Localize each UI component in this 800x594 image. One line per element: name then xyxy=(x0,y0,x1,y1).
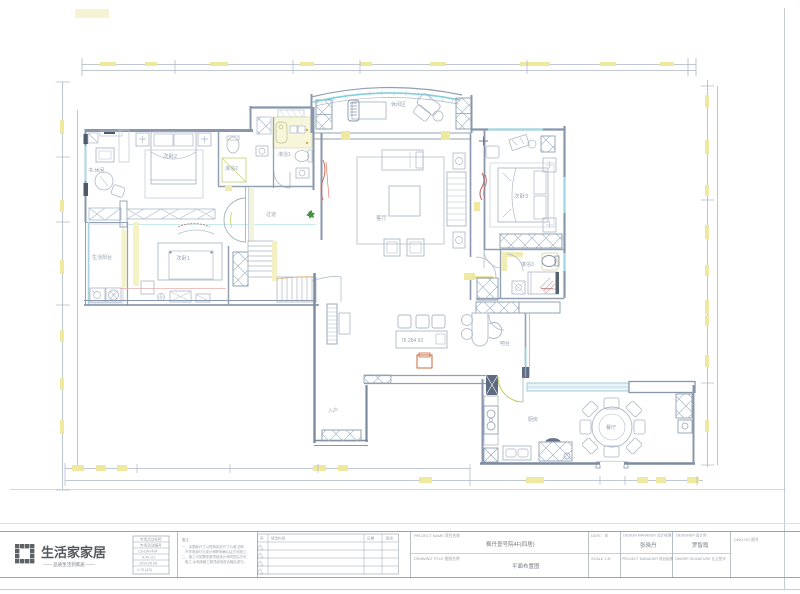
svg-text:二、施工中如需变更须经设计师同意后方可: 二、施工中如需变更须经设计师同意后方可 xyxy=(182,554,247,559)
svg-text:76 284 92: 76 284 92 xyxy=(401,338,423,344)
svg-text:—— 品质生活到家居 ——: —— 品质生活到家居 —— xyxy=(43,561,95,568)
svg-text:淋浴1: 淋浴1 xyxy=(278,151,291,158)
svg-text:生活家家居: 生活家家居 xyxy=(41,545,106,560)
svg-text:厨房: 厨房 xyxy=(528,416,538,423)
svg-text:施工,水电隐蔽工程须经验收合格后进行。: 施工,水电隐蔽工程须经验收合格后进行。 xyxy=(185,559,247,564)
svg-text:淋浴3: 淋浴3 xyxy=(521,261,534,268)
svg-text:备注:: 备注: xyxy=(182,537,190,542)
svg-text:市场活动编号: 市场活动编号 xyxy=(140,543,162,548)
svg-text:入户: 入户 xyxy=(328,407,338,414)
svg-text:吧台: 吧台 xyxy=(500,340,510,347)
svg-text:次卧2: 次卧2 xyxy=(163,152,177,160)
svg-text:A-PL-01: A-PL-01 xyxy=(142,556,155,560)
svg-text:DESIGNER 设计师: DESIGNER 设计师 xyxy=(676,533,707,538)
svg-text:客厅: 客厅 xyxy=(376,214,388,222)
svg-text:书.休闲: 书.休闲 xyxy=(88,167,104,174)
svg-text:DRAWING TITLE 图纸名称: DRAWING TITLE 图纸名称 xyxy=(414,556,460,561)
svg-text:SCALE 1:N: SCALE 1:N xyxy=(591,557,611,561)
svg-text:OWNER SIGNATURE 业主签字: OWNER SIGNATURE 业主签字 xyxy=(675,556,726,561)
svg-text:DATE：年: DATE：年 xyxy=(591,533,609,538)
svg-text:休闲区: 休闲区 xyxy=(391,101,406,108)
svg-text:市场活动名称: 市场活动名称 xyxy=(140,537,162,542)
svg-text:淋浴2: 淋浴2 xyxy=(225,165,238,172)
svg-text:CS-DA-HNF: CS-DA-HNF xyxy=(138,550,159,554)
svg-text:日期: 日期 xyxy=(367,536,375,541)
svg-text:张晓丹: 张晓丹 xyxy=(640,541,657,549)
svg-text:餐厅: 餐厅 xyxy=(606,424,616,431)
svg-text:2019.05.08: 2019.05.08 xyxy=(139,562,157,566)
svg-text:不符请及时与设计师联系确认后方可施工;: 不符请及时与设计师联系确认后方可施工; xyxy=(185,549,247,554)
svg-text:次卧3: 次卧3 xyxy=(514,192,528,200)
svg-text:修改内容: 修改内容 xyxy=(271,536,286,541)
svg-text:1:75 (A3): 1:75 (A3) xyxy=(137,568,152,572)
svg-text:平面布置图: 平面布置图 xyxy=(512,562,540,570)
svg-text:枫丹壹号院4F(四居): 枫丹壹号院4F(四居) xyxy=(486,540,535,548)
svg-text:一、本图纸尺寸以现场实际尺寸为准,如有: 一、本图纸尺寸以现场实际尺寸为准,如有 xyxy=(182,544,245,549)
svg-text:PROJECT MANAGER 项目经理: PROJECT MANAGER 项目经理 xyxy=(622,556,674,561)
svg-text:DWG NO 图号: DWG NO 图号 xyxy=(734,537,759,542)
svg-text:签名: 签名 xyxy=(386,536,394,541)
svg-text:PROJECT NAME 项目名称: PROJECT NAME 项目名称 xyxy=(414,533,460,538)
svg-text:罗智霞: 罗智霞 xyxy=(692,541,709,549)
svg-text:DESIGN MANAGER 设计经理: DESIGN MANAGER 设计经理 xyxy=(623,533,672,538)
svg-text:次卧1: 次卧1 xyxy=(176,254,190,262)
svg-text:序: 序 xyxy=(260,536,264,541)
svg-text:生活阳台: 生活阳台 xyxy=(92,254,112,261)
svg-text:过道: 过道 xyxy=(266,211,276,218)
